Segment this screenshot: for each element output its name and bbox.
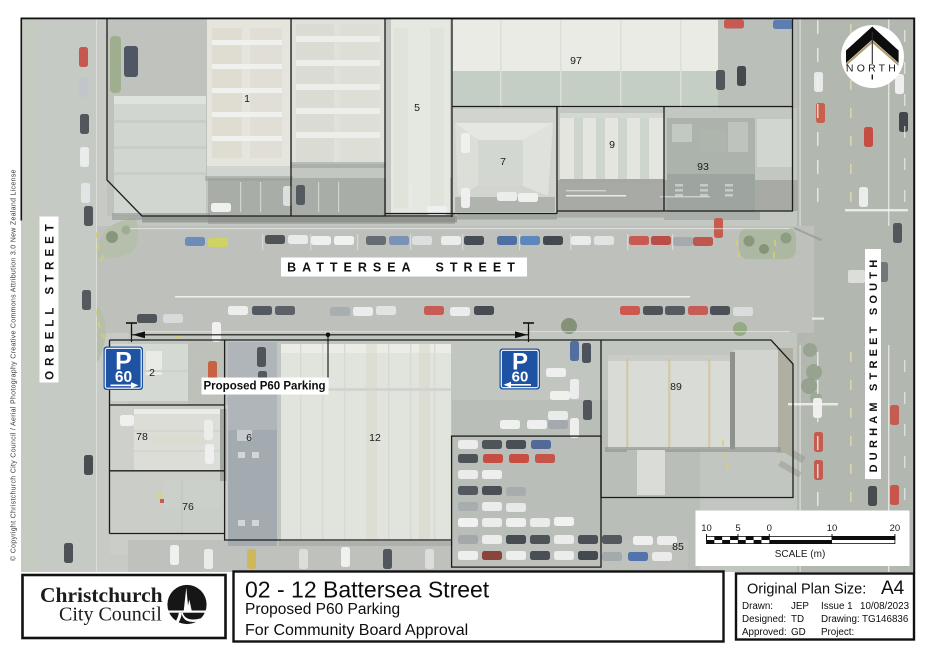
svg-text:20: 20 — [890, 523, 901, 534]
svg-text:93: 93 — [697, 161, 709, 173]
svg-text:ORBELL STREET: ORBELL STREET — [45, 219, 57, 380]
svg-text:1: 1 — [244, 93, 250, 105]
svg-text:60: 60 — [512, 369, 529, 386]
svg-text:SCALE (m): SCALE (m) — [775, 549, 826, 560]
svg-text:10: 10 — [827, 523, 838, 534]
svg-text:76: 76 — [182, 501, 194, 513]
svg-text:2: 2 — [149, 367, 155, 379]
svg-text:9: 9 — [609, 139, 615, 151]
svg-text:BATTERSEA STREET: BATTERSEA STREET — [287, 261, 521, 275]
svg-text:10: 10 — [701, 523, 712, 534]
svg-text:60: 60 — [115, 369, 132, 386]
svg-text:97: 97 — [570, 55, 582, 67]
svg-text:For Community Board Approval: For Community Board Approval — [245, 622, 468, 639]
svg-text:89: 89 — [670, 381, 682, 393]
svg-text:Approved:: Approved: — [742, 627, 787, 638]
svg-text:7: 7 — [500, 156, 506, 168]
svg-text:NORTH: NORTH — [846, 63, 899, 75]
svg-text:© Copyright Christchurch City: © Copyright Christchurch City Council / … — [10, 169, 18, 561]
svg-text:10/08/2023: 10/08/2023 — [860, 601, 910, 612]
svg-text:City Council: City Council — [59, 604, 162, 626]
svg-text:JEP: JEP — [791, 601, 809, 612]
svg-text:5: 5 — [735, 523, 740, 534]
svg-text:Original Plan Size:: Original Plan Size: — [747, 582, 866, 598]
svg-text:DURHAM STREET SOUTH: DURHAM STREET SOUTH — [868, 256, 880, 473]
svg-text:Proposed P60 Parking: Proposed P60 Parking — [204, 381, 326, 393]
svg-text:Drawn:: Drawn: — [742, 601, 773, 612]
svg-text:12: 12 — [369, 432, 381, 444]
svg-text:6: 6 — [246, 432, 252, 444]
svg-text:TG146836: TG146836 — [862, 614, 909, 625]
svg-text:02 - 12 Battersea Street: 02 - 12 Battersea Street — [245, 577, 490, 603]
svg-text:78: 78 — [136, 431, 148, 443]
svg-text:5: 5 — [414, 102, 420, 114]
svg-text:Issue 1: Issue 1 — [821, 601, 853, 612]
svg-text:GD: GD — [791, 627, 806, 638]
svg-text:Project:: Project: — [821, 627, 854, 638]
svg-text:Designed:: Designed: — [742, 614, 786, 625]
svg-text:A4: A4 — [881, 578, 905, 599]
svg-text:85: 85 — [672, 541, 684, 553]
svg-text:Drawing:: Drawing: — [821, 614, 860, 625]
svg-text:Proposed P60 Parking: Proposed P60 Parking — [245, 601, 400, 618]
svg-text:TD: TD — [791, 614, 804, 625]
svg-text:0: 0 — [767, 523, 772, 534]
